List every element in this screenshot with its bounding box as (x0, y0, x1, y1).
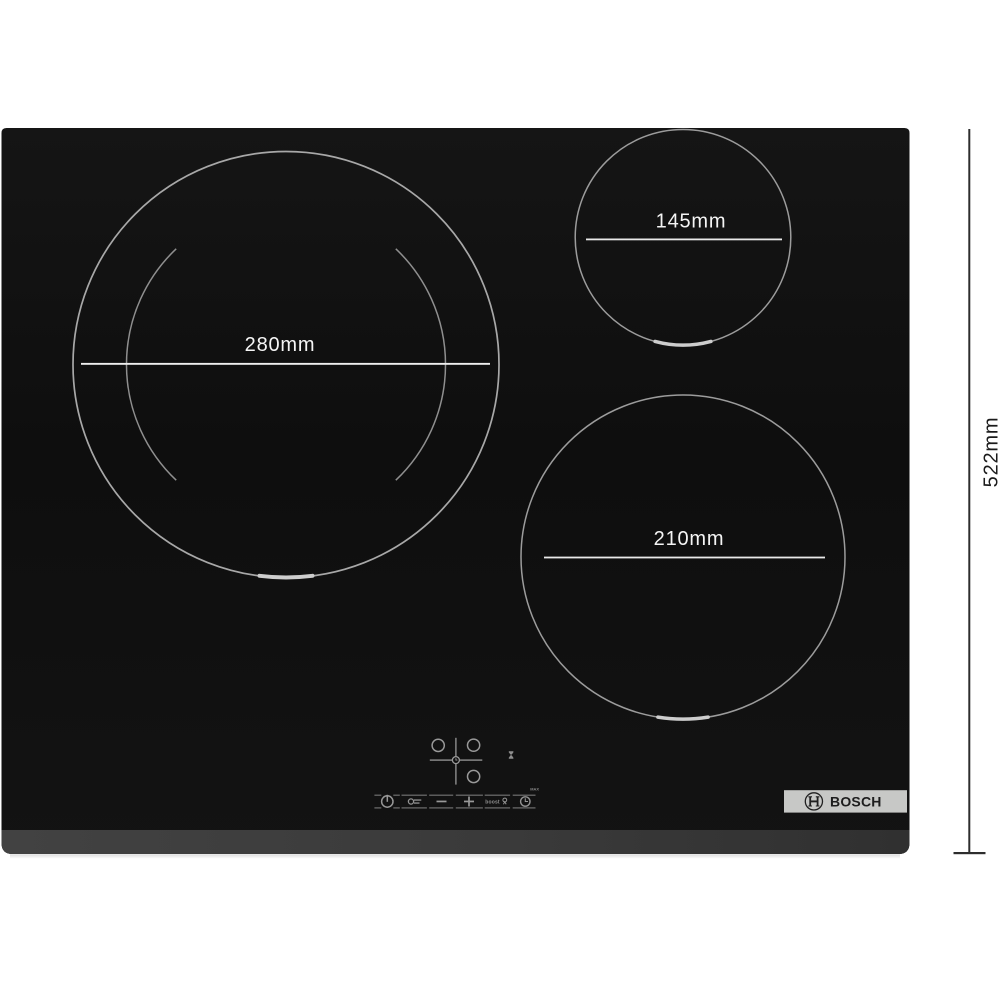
svg-text:MAX: MAX (530, 787, 539, 792)
svg-text:210mm: 210mm (654, 528, 725, 550)
svg-text:522mm: 522mm (981, 417, 1000, 488)
svg-text:280mm: 280mm (245, 334, 316, 356)
svg-text:BOSCH: BOSCH (830, 793, 882, 809)
svg-text:boost: boost (485, 799, 500, 805)
svg-text:145mm: 145mm (656, 211, 727, 233)
